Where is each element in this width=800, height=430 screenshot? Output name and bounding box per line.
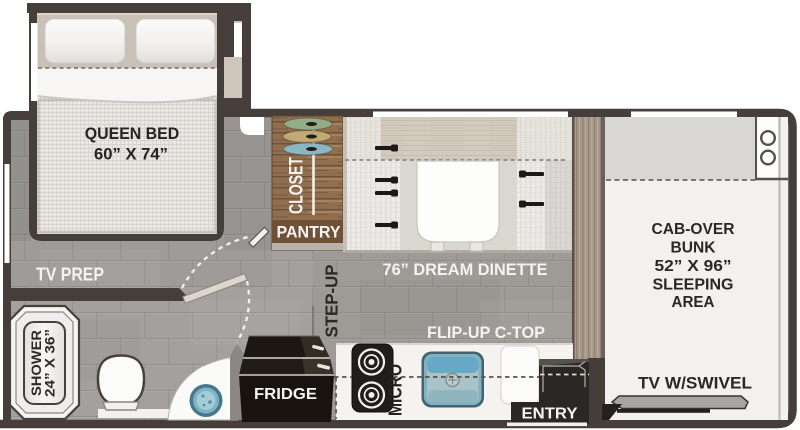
svg-text:TV PREP: TV PREP xyxy=(36,265,104,285)
svg-text:FLIP-UP C-TOP: FLIP-UP C-TOP xyxy=(427,324,545,342)
svg-text:MICRO: MICRO xyxy=(386,364,406,416)
svg-text:QUEEN BED: QUEEN BED xyxy=(85,125,180,143)
svg-text:24” X 36”: 24” X 36” xyxy=(43,329,58,397)
svg-text:AREA: AREA xyxy=(672,294,715,311)
svg-text:FRIDGE: FRIDGE xyxy=(254,386,317,403)
svg-text:CAB-OVER: CAB-OVER xyxy=(652,221,735,238)
svg-text:52” X 96”: 52” X 96” xyxy=(655,258,732,275)
svg-text:BUNK: BUNK xyxy=(671,240,716,257)
svg-text:CLOSET: CLOSET xyxy=(286,157,308,214)
svg-text:ENTRY: ENTRY xyxy=(522,406,578,423)
svg-text:60” X 74”: 60” X 74” xyxy=(94,146,168,164)
svg-text:76” DREAM DINETTE: 76” DREAM DINETTE xyxy=(383,261,548,279)
svg-text:STEP-UP: STEP-UP xyxy=(322,264,342,337)
svg-text:PANTRY: PANTRY xyxy=(277,223,342,242)
svg-text:TV W/SWIVEL: TV W/SWIVEL xyxy=(638,375,752,393)
svg-text:SLEEPING: SLEEPING xyxy=(653,277,734,294)
